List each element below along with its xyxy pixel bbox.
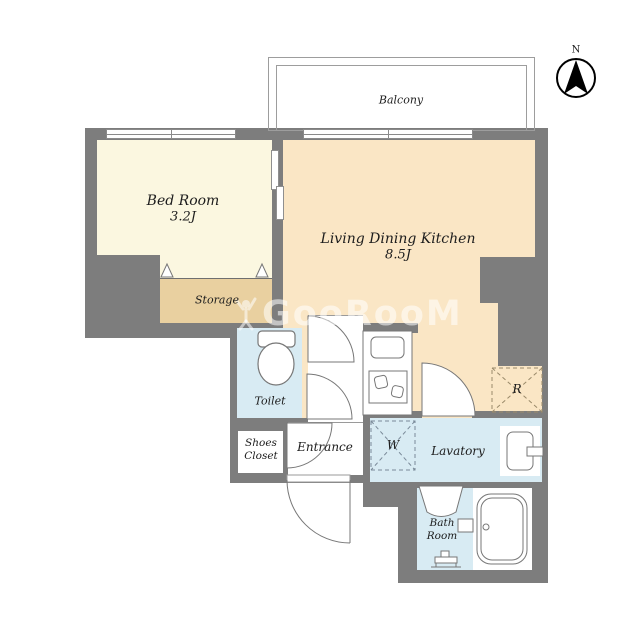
ldk-label: Living Dining Kitchen [321,231,476,247]
shoes-closet-label-2: Closet [244,450,278,462]
ldk-area: 8.5J [385,249,411,264]
entrance-label: Entrance [297,441,353,455]
lavatory-label: Lavatory [431,445,485,459]
bedroom-area: 3.2J [170,211,196,226]
refrigerator-space-label: R [512,383,521,397]
bedroom-floor-lower [160,255,272,278]
wall-kitchen-top [363,323,418,333]
hall-floor [308,315,363,423]
bedroom-label: Bed Room [147,193,220,209]
floor-plan: GooRooM Balcony Bed Room 3.2J Living Din… [0,0,640,640]
bathroom-label-1: Bath [430,517,455,529]
bedroom-sliding-door-panel-2 [276,186,284,220]
window-tick [388,130,389,138]
ldk-window [303,129,473,139]
wall-ldk-lavatory-right [472,411,542,418]
bedroom-sliding-door-panel-1 [271,150,279,190]
window-tick [171,130,172,138]
bedroom-window [106,129,236,139]
hall-ldk-threshold [308,315,363,316]
wall-hall-kitchen [363,323,370,483]
hall-entrance-threshold [288,422,363,423]
front-door [287,475,350,543]
balcony-label: Balcony [379,95,423,108]
storage-label: Storage [195,295,239,308]
ldk-floor-strip [480,303,498,418]
bathroom-label-2: Room [427,530,458,542]
compass-icon [557,59,595,97]
bathtub-platform [473,488,532,570]
shoes-closet-label-1: Shoes [245,437,277,449]
wall-ldk-lavatory-left [370,411,422,418]
washer-space-label: W [387,439,399,453]
toilet-label: Toilet [254,396,285,409]
compass-north-label: N [572,44,581,56]
